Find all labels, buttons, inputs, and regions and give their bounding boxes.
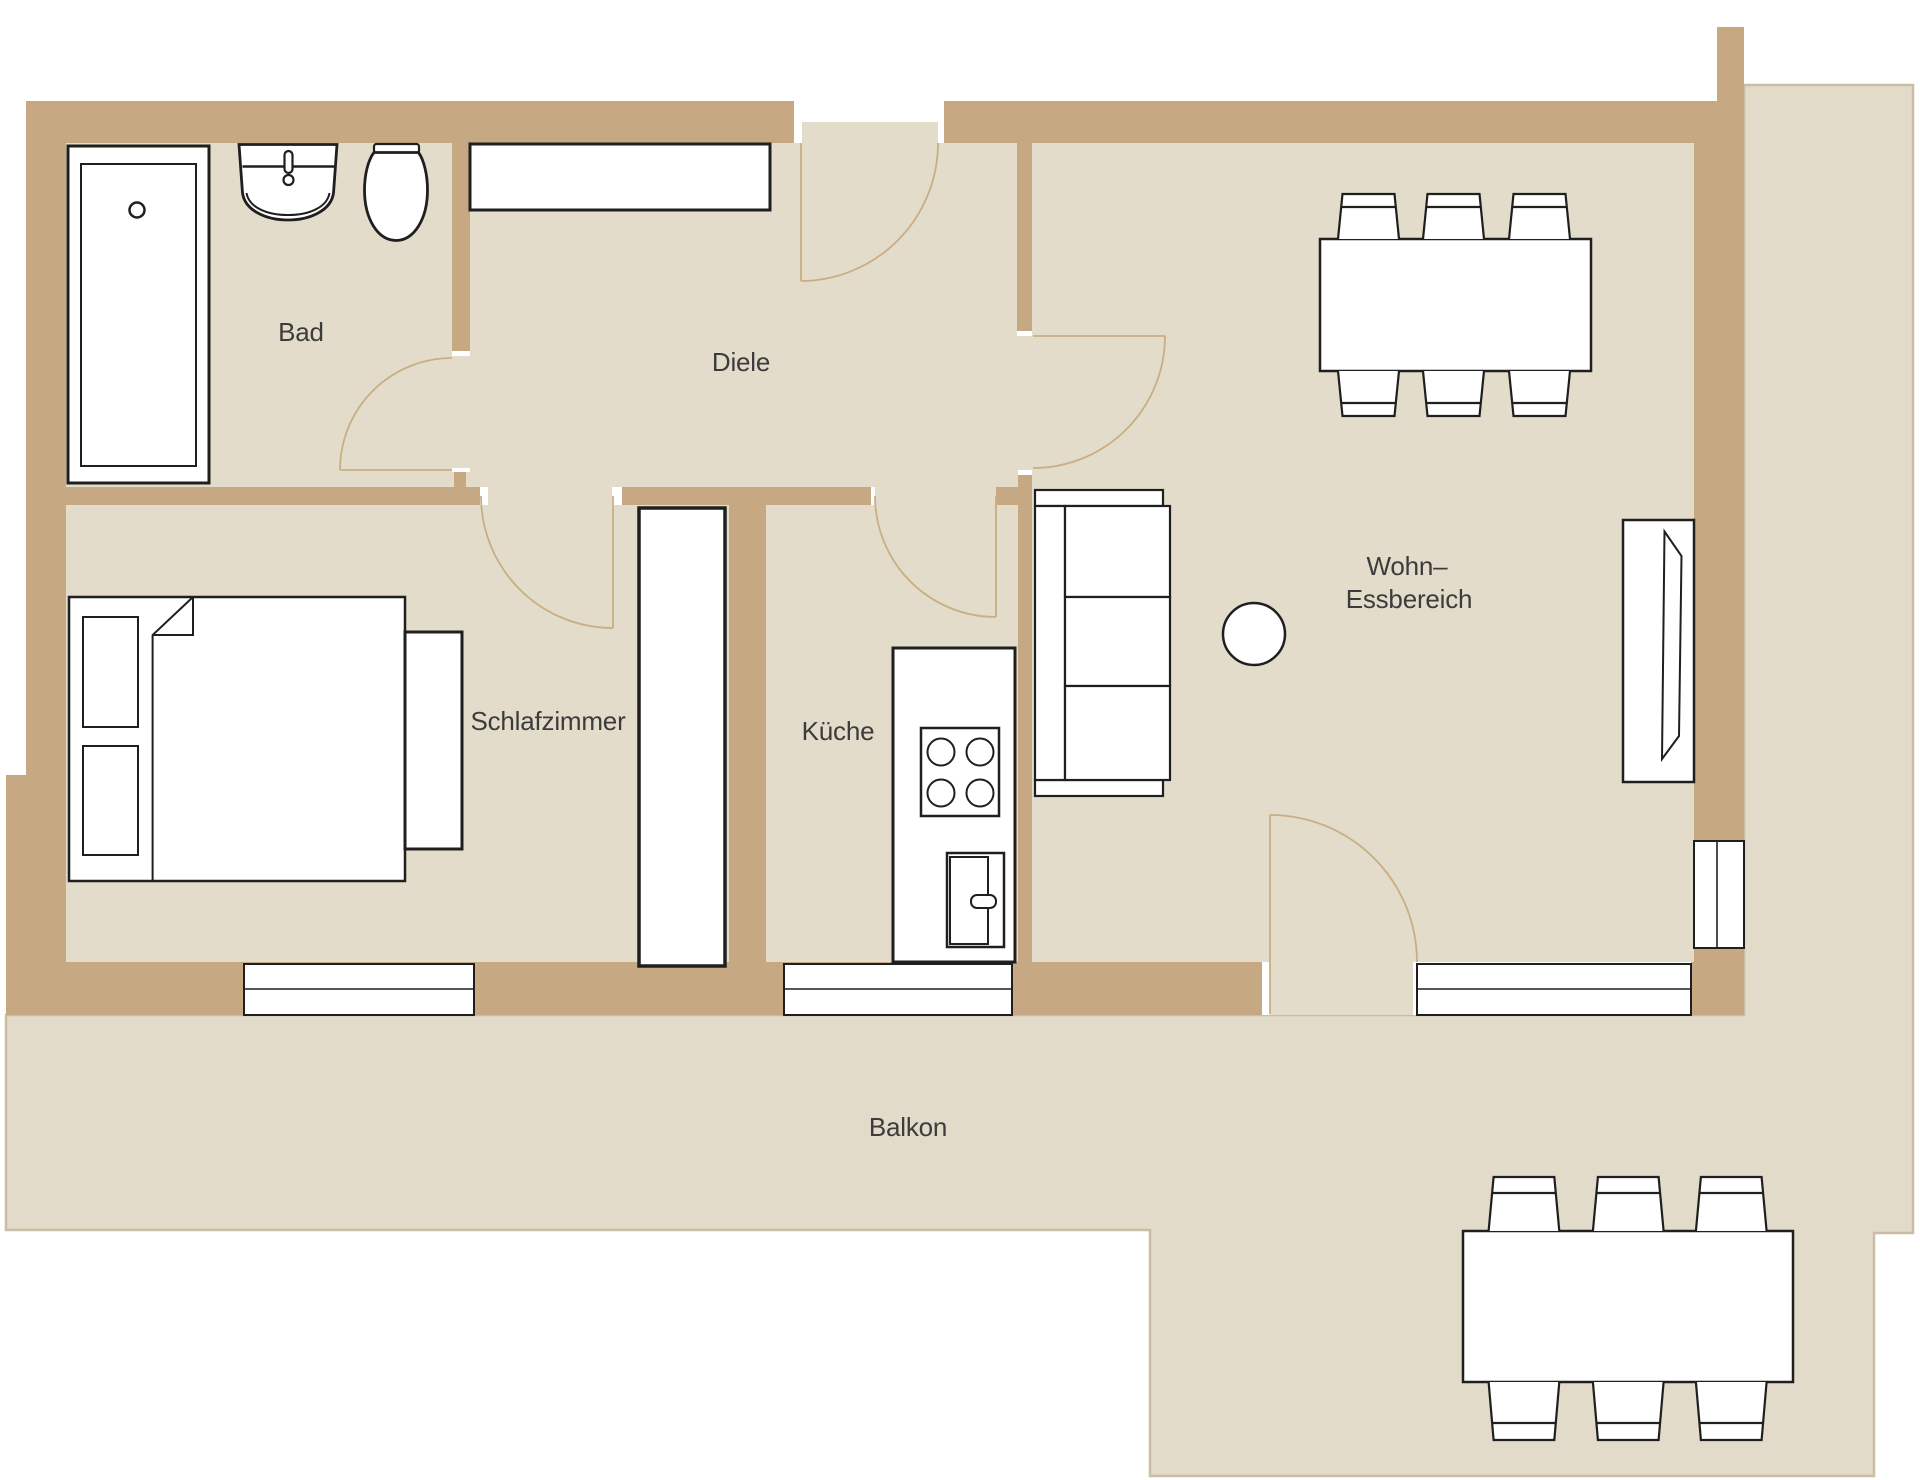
svg-text:Diele: Diele — [712, 347, 770, 377]
svg-text:Wohn–: Wohn– — [1367, 551, 1449, 581]
svg-text:Balkon: Balkon — [869, 1112, 947, 1142]
svg-text:Essbereich: Essbereich — [1346, 584, 1473, 614]
svg-text:Schlafzimmer: Schlafzimmer — [470, 706, 626, 736]
svg-text:Küche: Küche — [802, 716, 875, 746]
svg-text:Bad: Bad — [278, 317, 324, 347]
